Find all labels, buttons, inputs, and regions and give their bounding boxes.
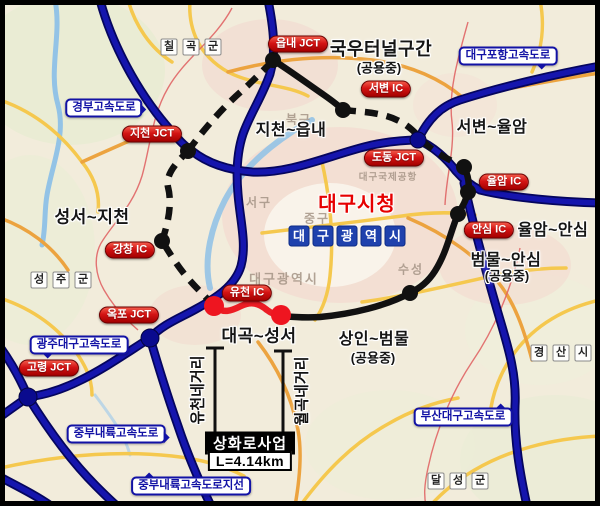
gangchang-ic-dot (154, 233, 170, 249)
callout-tail (163, 432, 175, 444)
seongseo-jicheon-section (162, 151, 188, 241)
yulam-ic-dot (460, 184, 476, 200)
district-label-seogu: 서구 (246, 194, 272, 211)
seobyeon-ic-dot (335, 102, 351, 118)
badge-eupnae-jct: 읍내 JCT (268, 36, 328, 53)
label-gyeongbu-expressway: 경부고속도로 (65, 99, 142, 118)
project-length-box: L=4.14km (208, 451, 292, 471)
section-seongseo-jicheon: 성서~지천 (55, 203, 130, 228)
yucheon-ic-dot (204, 296, 224, 316)
region-label-chilgok: 칠곡군 (161, 39, 222, 56)
badge-jicheon-jct: 지천 JCT (122, 126, 182, 143)
yulam-node-dot (456, 159, 472, 175)
section-yulam-ansim: 율암~안심 (518, 216, 589, 240)
section-beommul-ansim-status: (공용중) (485, 266, 530, 285)
dodong-jct-dot (410, 132, 426, 148)
badge-yucheon-ic: 유천 IC (222, 285, 272, 302)
badge-ansim-ic: 안심 IC (464, 222, 514, 239)
region-label-seongju: 성주군 (31, 272, 92, 289)
daegu-metro-label: 대구광역시 (289, 226, 406, 247)
badge-yulam-ic: 율암 IC (479, 174, 529, 191)
wolgok-intersection-label: 월곡네거리 (291, 356, 312, 425)
badge-gangchang-ic: 강창 IC (105, 242, 155, 259)
label-jungbu-naeryuk-expressway: 중부내륙고속도로 (67, 425, 166, 444)
yucheon-intersection-label: 유천네거리 (187, 355, 208, 424)
badge-okpo-jct: 옥포 JCT (99, 307, 159, 324)
jicheon-jct-dot (180, 143, 196, 159)
label-gwangju-daegu-expressway: 광주대구고속도로 (30, 336, 129, 355)
section-seobyeon-yulam: 서변~율암 (457, 113, 528, 137)
section-sangin-beommul-status: (공용중) (351, 348, 396, 367)
badge-goryeong-jct: 고령 JCT (19, 360, 79, 377)
section-jicheon-eupnae: 지천~읍내 (256, 116, 327, 140)
project-extent-bracket (206, 348, 292, 441)
daegu-city-hall-label: 대구시청 (318, 188, 396, 217)
callout-tail (535, 64, 547, 76)
goryeong-jct-dot (19, 388, 37, 406)
section-gukwoo-tunnel-status: (공용중) (357, 58, 402, 77)
region-label-gyeongsan: 경산시 (531, 345, 592, 362)
badge-seobyeon-ic: 서변 IC (361, 81, 411, 98)
airport-label: 대구국제공항 (359, 169, 417, 183)
ansim-ic-dot (450, 206, 466, 222)
district-label-suseong: 수성 (398, 261, 424, 278)
label-daegu-pohang-expressway: 대구포항고속도로 (459, 47, 558, 66)
daegu-ring-road-map: 북구 서구 중구 수성 대구국제공항 대구광역시 지천~읍내 국우터널구간 (공… (0, 0, 600, 506)
callout-tail (494, 398, 506, 410)
eupnae-jct-dot (265, 52, 281, 68)
label-busan-daegu-expressway: 부산대구고속도로 (414, 408, 513, 427)
section-daegok-seongseo: 대곡~성서 (222, 322, 297, 347)
okpo-jct-dot (141, 329, 159, 347)
beommul-dot (402, 285, 418, 301)
badge-dodong-jct: 도동 JCT (364, 150, 424, 167)
label-jungbu-naeryuk-jiseon: 중부내륙고속도로지선 (131, 477, 251, 496)
section-sangin-beommul: 상인~범물 (339, 325, 410, 349)
callout-tail (143, 467, 155, 479)
region-label-dalseong: 달성군 (428, 473, 489, 490)
callout-tail (141, 104, 153, 116)
